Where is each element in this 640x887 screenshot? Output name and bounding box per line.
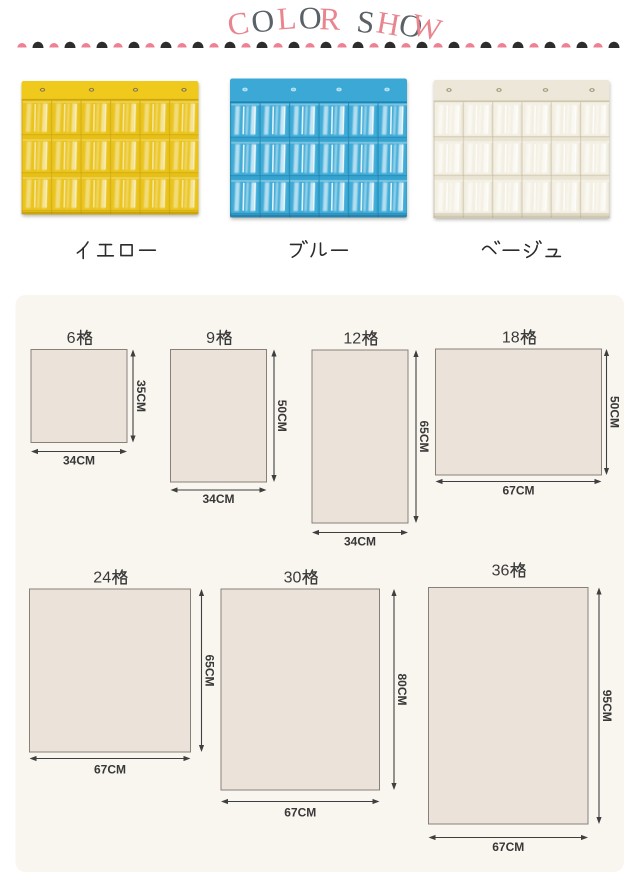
svg-text:67CM: 67CM xyxy=(94,763,126,777)
svg-text:80CM: 80CM xyxy=(395,673,409,705)
svg-text:R: R xyxy=(319,1,341,37)
svg-text:65CM: 65CM xyxy=(203,654,217,686)
svg-text:6: 6 xyxy=(67,330,76,347)
svg-text:O: O xyxy=(249,2,276,40)
svg-text:67CM: 67CM xyxy=(284,806,316,820)
svg-text:50CM: 50CM xyxy=(275,400,289,432)
svg-text:24: 24 xyxy=(93,570,111,587)
svg-text:9: 9 xyxy=(206,330,215,347)
svg-text:S: S xyxy=(355,4,377,41)
svg-text:50CM: 50CM xyxy=(608,396,622,428)
svg-text:L: L xyxy=(276,0,298,36)
svg-text:67CM: 67CM xyxy=(502,484,534,498)
svg-text:35CM: 35CM xyxy=(134,380,148,412)
svg-text:C: C xyxy=(225,5,252,43)
svg-text:34CM: 34CM xyxy=(202,492,234,506)
svg-text:12: 12 xyxy=(343,331,361,348)
svg-text:34CM: 34CM xyxy=(344,535,376,549)
svg-text:30: 30 xyxy=(284,570,302,587)
svg-text:36: 36 xyxy=(492,563,510,580)
svg-text:34CM: 34CM xyxy=(63,454,95,468)
svg-text:67CM: 67CM xyxy=(492,840,524,854)
svg-text:18: 18 xyxy=(502,330,520,347)
svg-text:65CM: 65CM xyxy=(417,420,431,452)
svg-text:95CM: 95CM xyxy=(600,690,614,722)
